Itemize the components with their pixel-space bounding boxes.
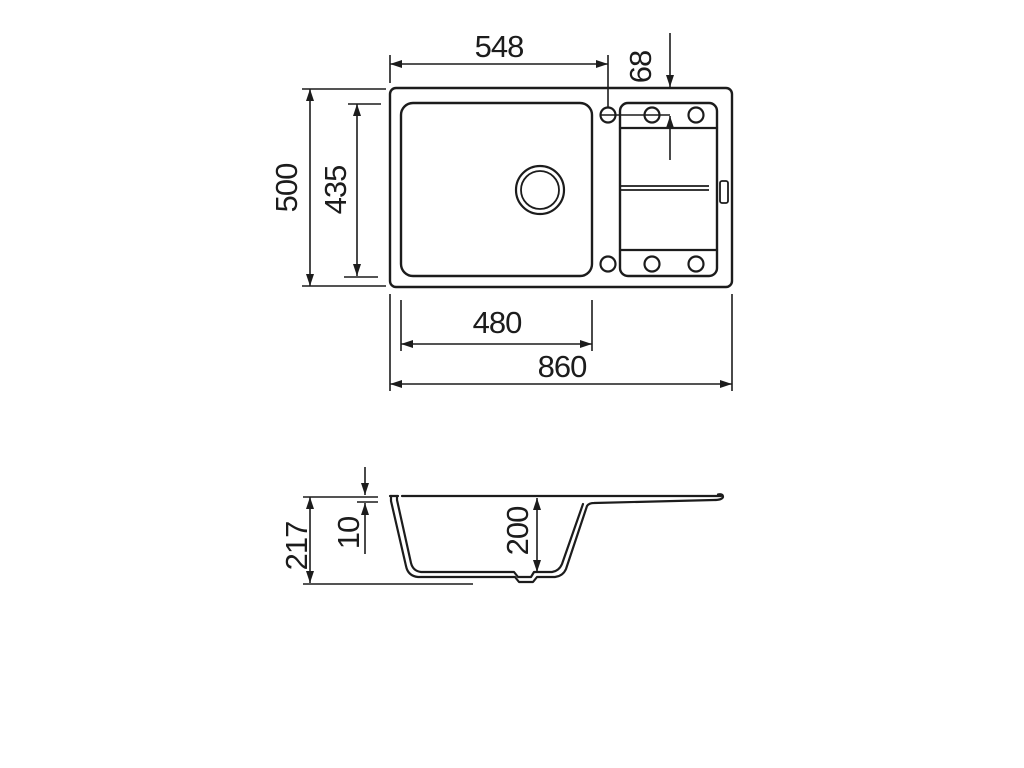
dimension-label-548: 548 xyxy=(475,29,524,64)
section-profile-outer xyxy=(391,494,723,582)
technical-drawing-canvas: 548 68 500 435 480 860 xyxy=(0,0,1024,768)
dimension-label-10: 10 xyxy=(331,516,366,549)
section-view-dimensions: 217 10 200 xyxy=(279,467,537,584)
drain-hole-inner xyxy=(521,171,559,209)
dimension-label-500: 500 xyxy=(269,163,304,212)
sink-outer-edge xyxy=(390,88,732,287)
tap-hole xyxy=(645,257,660,272)
dimension-label-435: 435 xyxy=(318,166,353,215)
dimension-label-68: 68 xyxy=(623,51,658,83)
top-view xyxy=(390,88,732,287)
overflow-slot xyxy=(720,181,728,203)
dimension-label-200: 200 xyxy=(500,506,535,555)
dimension-label-860: 860 xyxy=(538,349,587,384)
section-view xyxy=(390,494,723,582)
drain-hole-outer xyxy=(516,166,564,214)
tap-hole xyxy=(601,257,616,272)
dimension-label-480: 480 xyxy=(473,305,522,340)
tap-hole xyxy=(689,257,704,272)
dimension-label-217: 217 xyxy=(279,522,314,571)
section-profile-inner xyxy=(397,496,583,577)
sink-drawing-svg: 548 68 500 435 480 860 xyxy=(0,0,1024,768)
top-view-dimensions: 548 68 500 435 480 860 xyxy=(269,29,732,391)
tap-hole xyxy=(689,108,704,123)
